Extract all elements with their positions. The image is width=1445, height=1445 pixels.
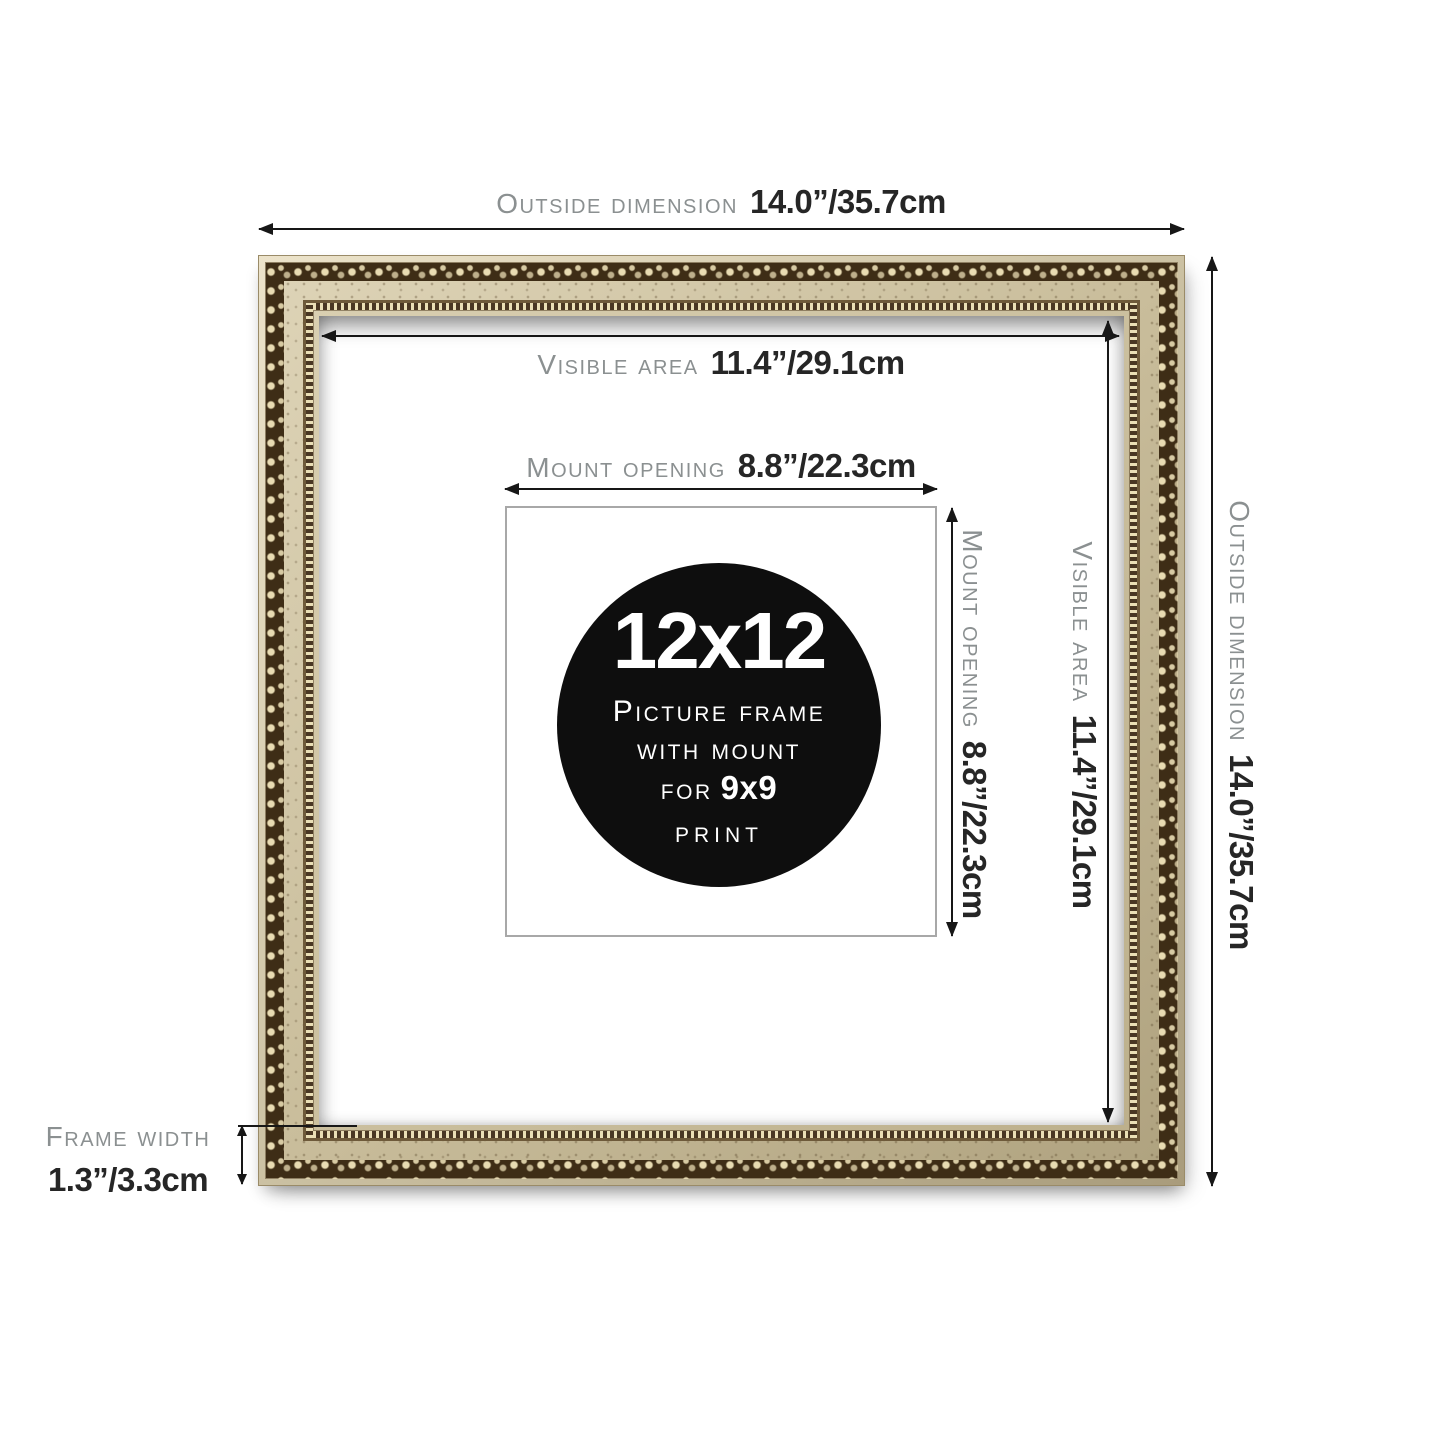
mount-opening-right-arrow (951, 508, 953, 936)
outside-dimension-top-value: 14.0”/35.7cm (750, 183, 946, 220)
mount-opening-top-label: Mount opening8.8”/22.3cm (526, 447, 915, 485)
badge-line-picture-frame: Picture frame (613, 693, 826, 731)
visible-area-right-name: Visible area (1067, 541, 1098, 702)
visible-area-top-label: Visible area11.4”/29.1cm (537, 344, 904, 382)
badge-size-text: 12x12 (613, 601, 825, 681)
badge-line-with-mount: with mount (637, 731, 801, 769)
frame-bead-strip-right (1130, 303, 1137, 1138)
outside-dimension-top-name: Outside dimension (496, 188, 738, 219)
visible-area-right-arrow (1107, 321, 1109, 1122)
badge-print-size: 9x9 (721, 769, 778, 806)
mount-opening-right-value: 8.8”/22.3cm (956, 741, 993, 919)
outside-dimension-right-label: Outside dimension14.0”/35.7cm (1222, 500, 1260, 950)
outside-dimension-right-arrow (1211, 257, 1213, 1186)
visible-area-top-arrow (322, 335, 1119, 337)
mount-opening-right-label: Mount opening8.8”/22.3cm (955, 529, 993, 918)
outside-dimension-right-value: 14.0”/35.7cm (1223, 754, 1260, 950)
visible-area-right-label: Visible area11.4”/29.1cm (1065, 541, 1103, 908)
badge-line-for-print-size: for9x9 (661, 769, 777, 814)
outside-dimension-top-label: Outside dimension14.0”/35.7cm (496, 183, 946, 221)
frame-width-label-value: 1.3”/3.3cm (48, 1161, 208, 1199)
badge-line-print: print (675, 814, 763, 852)
frame-bead-strip-top (306, 303, 1137, 310)
mount-opening-top-value: 8.8”/22.3cm (738, 447, 916, 484)
frame-width-tick-line (238, 1125, 357, 1127)
mount-opening-right-name: Mount opening (957, 529, 988, 729)
frame-bead-strip-bottom (306, 1131, 1137, 1138)
outside-dimension-right-name: Outside dimension (1224, 500, 1255, 742)
frame-bead-strip-left (306, 303, 313, 1138)
mount-opening-top-arrow (505, 488, 937, 490)
frame-width-arrow (241, 1126, 243, 1184)
size-badge: 12x12 Picture frame with mount for9x9 pr… (557, 563, 881, 887)
visible-area-top-name: Visible area (537, 349, 698, 380)
visible-area-right-value: 11.4”/29.1cm (1066, 715, 1103, 909)
visible-area-top-value: 11.4”/29.1cm (711, 344, 905, 381)
frame-width-label-name: Frame width (46, 1121, 211, 1153)
product-dimension-diagram: 12x12 Picture frame with mount for9x9 pr… (0, 0, 1445, 1445)
mount-opening-top-name: Mount opening (526, 452, 726, 483)
badge-for-label: for (661, 773, 713, 806)
outside-dimension-top-arrow (259, 228, 1184, 230)
